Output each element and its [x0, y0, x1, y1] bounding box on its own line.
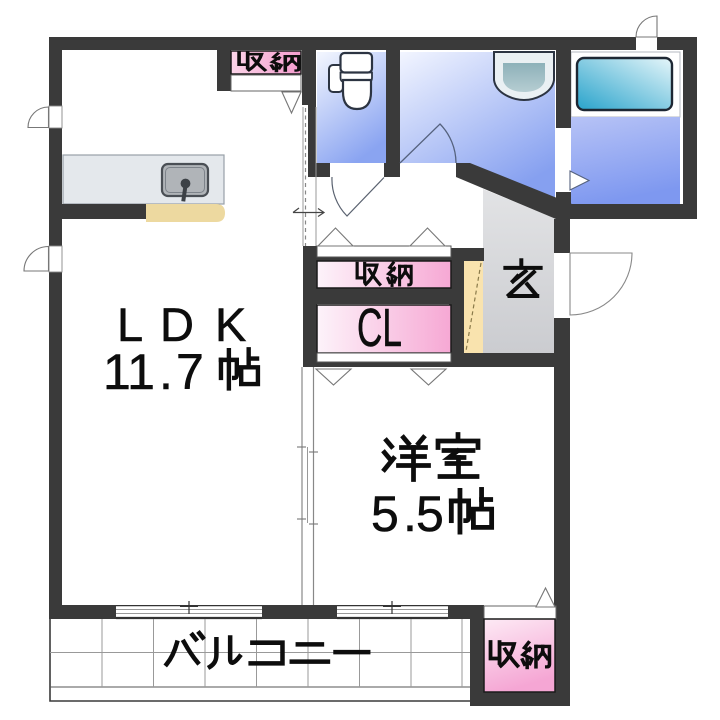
svg-text:7: 7	[176, 344, 204, 400]
svg-text:K: K	[215, 298, 246, 351]
svg-text:.: .	[403, 486, 417, 542]
svg-text:5: 5	[416, 486, 444, 542]
svg-text:CL: CL	[357, 298, 402, 358]
svg-text:.: .	[159, 344, 173, 400]
svg-text:11: 11	[103, 344, 155, 400]
svg-text:5: 5	[371, 486, 399, 542]
